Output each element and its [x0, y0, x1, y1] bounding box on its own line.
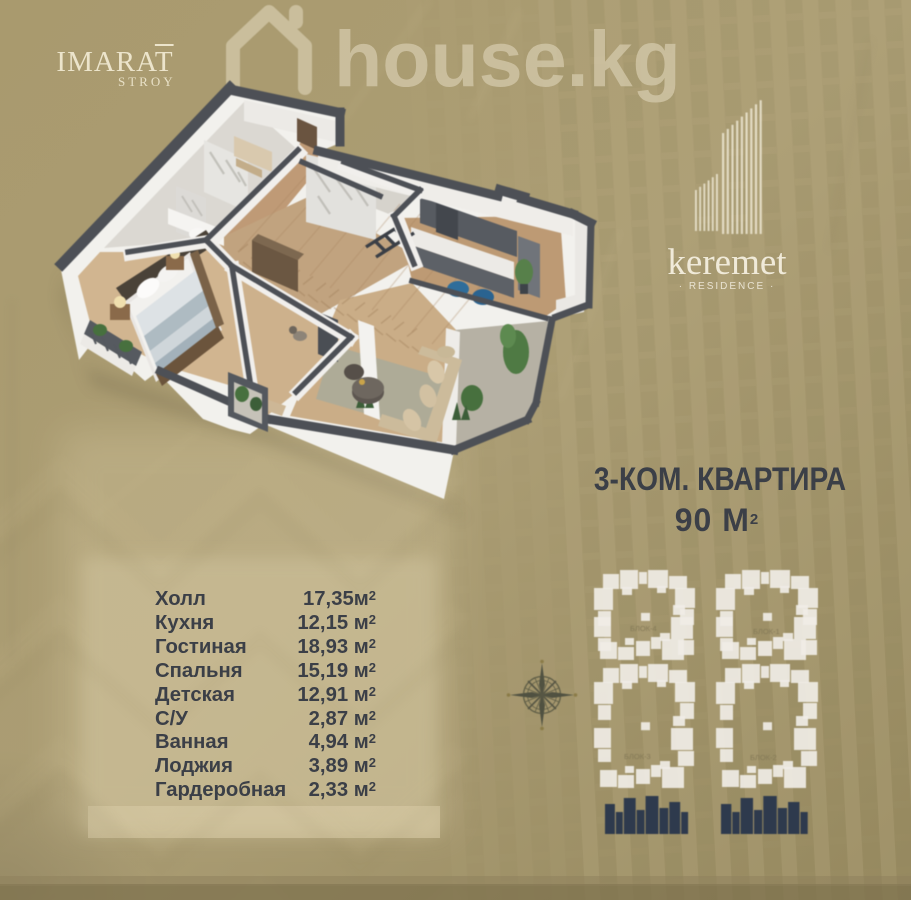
svg-text:БЛОК-1: БЛОК-1 [753, 627, 780, 636]
svg-text:БЛОК-2: БЛОК-2 [750, 753, 777, 762]
svg-text:БЛОК-4: БЛОК-4 [630, 624, 657, 633]
svg-text:БЛОК-3: БЛОК-3 [624, 752, 651, 761]
